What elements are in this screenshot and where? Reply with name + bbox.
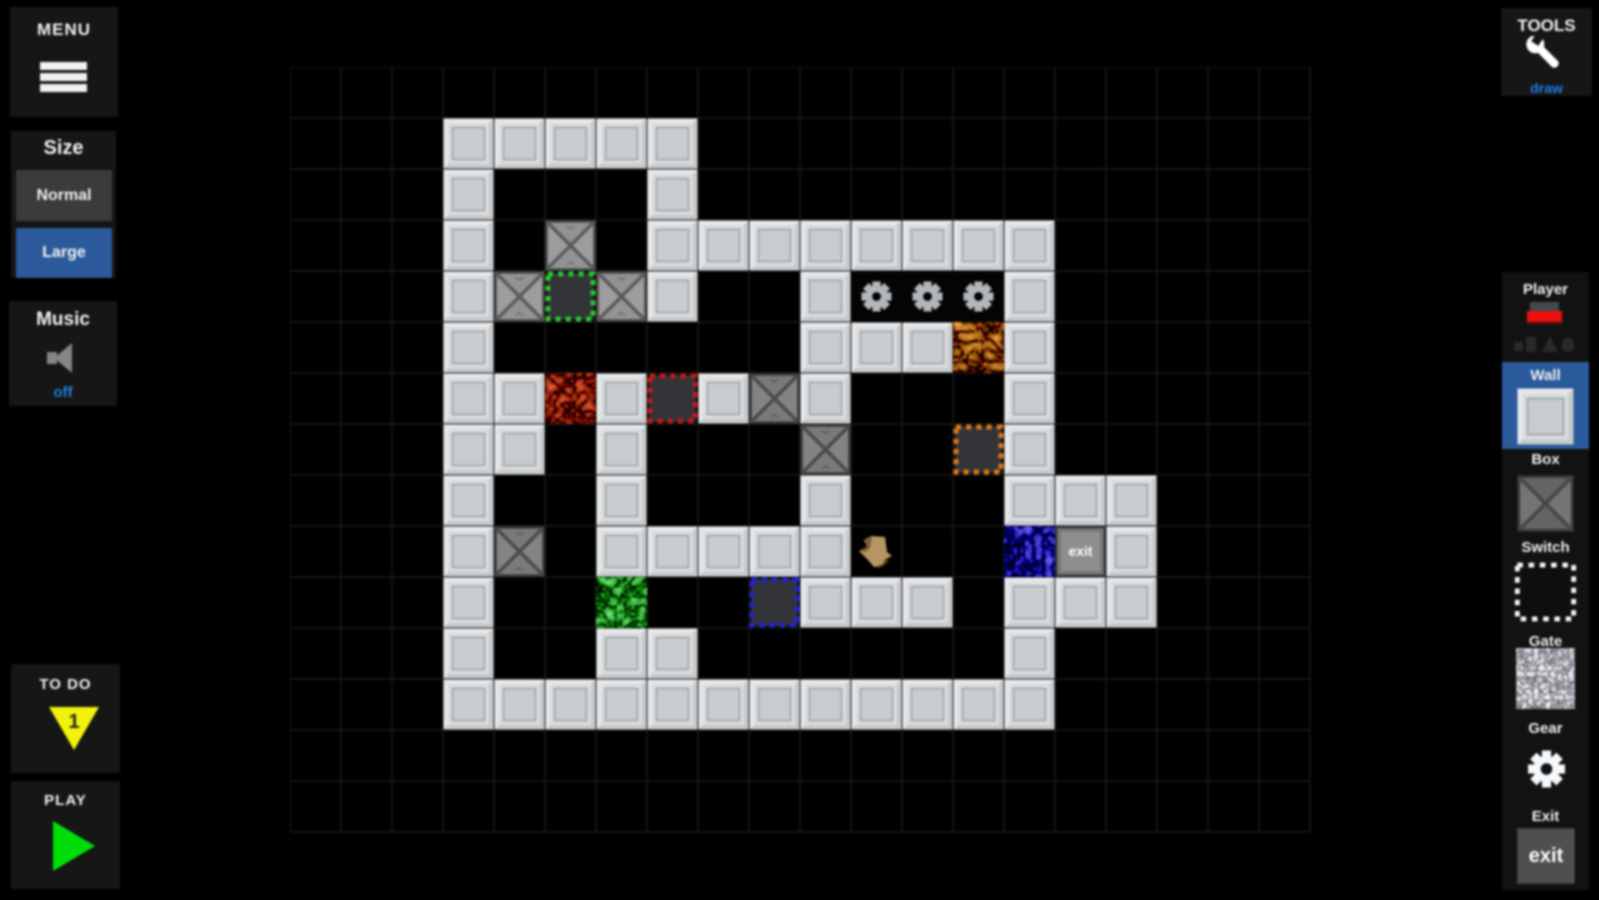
svg-text:exit: exit bbox=[1068, 543, 1092, 559]
svg-text:1: 1 bbox=[68, 711, 79, 733]
